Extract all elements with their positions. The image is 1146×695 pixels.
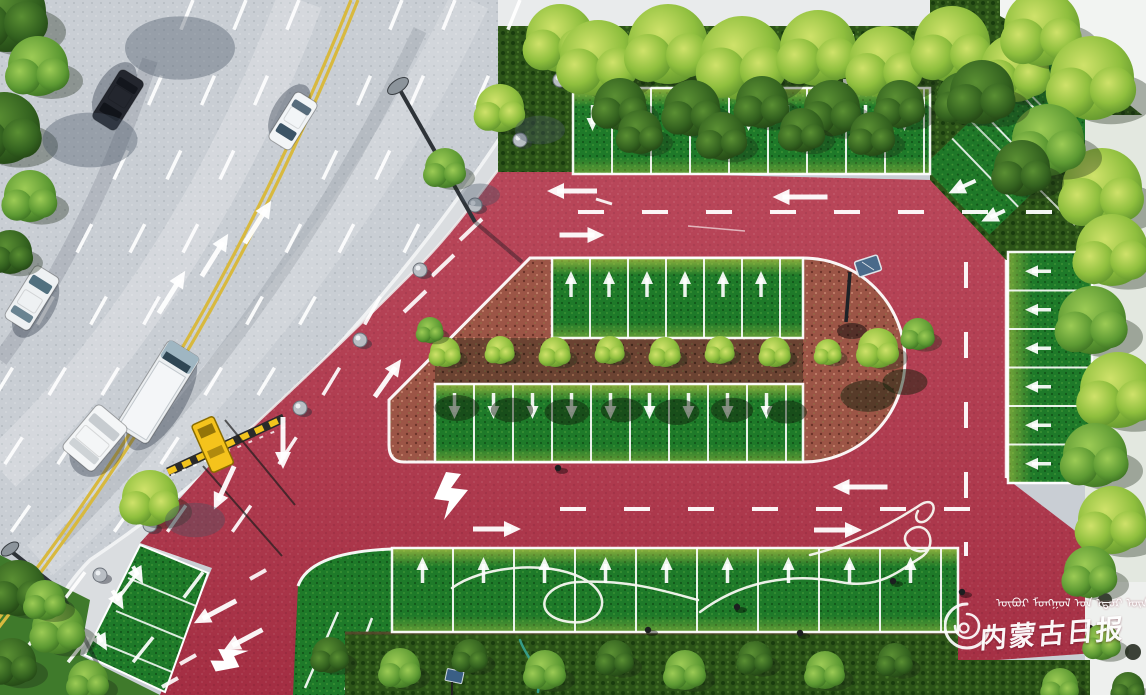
tree-shadow	[515, 116, 565, 145]
tree-shadow	[43, 113, 138, 168]
tree-shadow	[767, 400, 807, 423]
tree-shadow	[460, 183, 500, 206]
tree-shadow	[545, 399, 590, 425]
publisher-watermark: ᠥᠪᠥᠷ ᠮᠣᠩᠭᠣᠯ ᠤᠨ ᠡᠳᠦᠷ ᠦᠨ ᠰᠣᠨᠢᠨ 内蒙古日报	[928, 584, 1143, 674]
tree-shadow	[125, 16, 235, 79]
tree-shadow	[711, 398, 754, 422]
tree-shadow	[655, 399, 700, 425]
parking-row-island-bottom-row	[435, 384, 803, 462]
tree-shadow	[435, 395, 480, 421]
parking-row-island-top-row	[552, 258, 803, 338]
tree-shadow	[165, 503, 225, 538]
tree-shadow	[491, 398, 534, 422]
tree-shadow	[601, 398, 644, 422]
tree-shadow	[883, 369, 928, 395]
parking-row-bottom-row	[392, 548, 958, 632]
south-hedge	[345, 632, 958, 695]
aerial-photo-parking-lot: ᠥᠪᠥᠷ ᠮᠣᠩᠭᠣᠯ ᠤᠨ ᠡᠳᠦᠷ ᠦᠨ ᠰᠣᠨᠢᠨ 内蒙古日报	[0, 0, 1146, 695]
